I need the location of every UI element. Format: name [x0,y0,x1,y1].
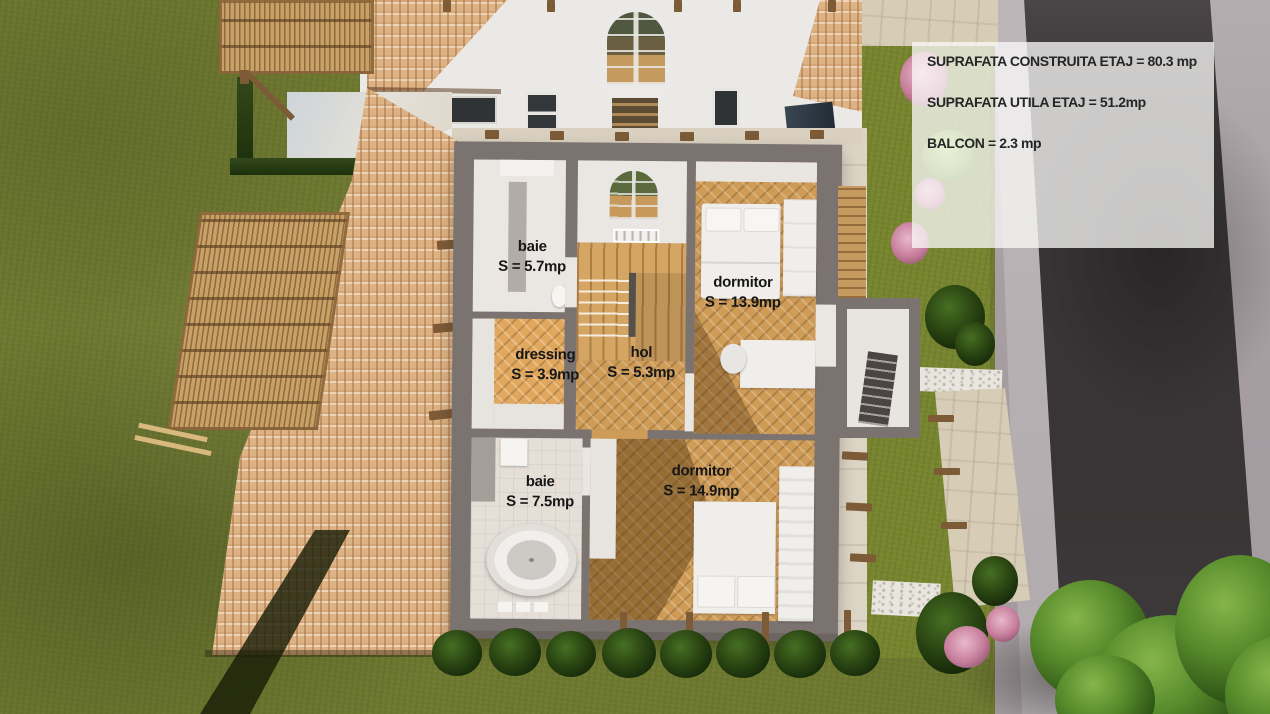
info-line-built-area: SUPRAFATA CONSTRUITA ETAJ = 80.3 mp [927,53,1214,69]
balcony [836,298,920,438]
path-tie-1 [928,415,954,422]
hol-radiator [613,229,659,243]
joist-6 [810,130,824,139]
door-baie-bottom [582,447,590,495]
room-area: S = 13.9mp [705,293,781,314]
rafter-4 [733,0,741,12]
chair-top [720,344,746,374]
hedge-bush-8 [830,630,880,676]
dormitor-top-wall-face [696,161,817,182]
label-dormitor-bottom: dormitor S = 14.9mp [663,461,739,502]
label-baie-bottom: baie S = 7.5mp [506,472,574,513]
room-area: S = 3.9mp [511,365,579,386]
conifer-2 [955,322,995,366]
info-line-balcony-area: BALCON = 2.3 mp [927,135,1214,151]
joist-5 [745,131,759,140]
info-line-usable-area: SUPRAFATA UTILA ETAJ = 51.2mp [927,94,1214,110]
deck-strip [838,186,866,298]
wall-beam-r1 [842,451,868,460]
bath-mat-3 [534,602,548,612]
dressing-shelf-band [472,318,495,428]
area-info-panel: SUPRAFATA CONSTRUITA ETAJ = 80.3 mp SUPR… [912,42,1214,248]
room-name: baie [506,472,574,493]
rafter-2 [547,0,555,12]
wardrobe-drawer-2 [737,576,775,608]
room-name: dormitor [663,461,739,482]
label-dormitor-top: dormitor S = 13.9mp [705,273,781,314]
conifer-4 [972,556,1018,606]
pergola-top [219,0,374,74]
rafter-5 [828,0,836,12]
hedge-bush-1 [432,630,482,676]
bathtub [486,524,577,597]
hol-arch-window [605,167,661,223]
room-area: S = 5.7mp [498,257,566,278]
joist-2 [550,131,564,140]
path-tie-3 [941,522,967,529]
hedge-bush-4 [602,628,656,678]
arch-window-sill [606,88,666,98]
room-name: baie [498,237,566,258]
wall-beam-r3 [850,553,876,562]
hedge-bush-7 [774,630,826,678]
wardrobe-drawer-1 [697,575,735,607]
balcony-railing [858,351,898,426]
room-name: hol [607,343,675,364]
rafter-1 [443,0,451,12]
wall-beam-r2 [846,502,872,511]
hedge-bush-2 [489,628,541,676]
hedge-vertical [237,77,253,163]
window-right [712,88,740,128]
bath-mat-2 [516,602,530,612]
joist-1 [485,130,499,139]
room-name: dressing [511,345,579,366]
joist-4 [680,132,694,141]
label-dressing: dressing S = 3.9mp [511,345,579,386]
window-left [447,96,497,124]
washer [500,439,527,466]
hedge-bush-3 [546,631,596,677]
dormitor-bottom-wall-face [590,439,617,559]
path-tie-2 [934,468,960,475]
hedge-bush-6 [716,628,770,678]
label-hol: hol S = 5.3mp [607,343,675,384]
bath-mat-1 [498,602,512,612]
wardrobe-top [783,199,817,296]
room-area: S = 7.5mp [506,492,574,513]
joist-3 [615,132,629,141]
room-name: dormitor [705,273,781,294]
rafter-3 [674,0,682,12]
door-baie-top [565,257,577,307]
hedge-bush-5 [660,630,712,678]
floor-plan: baie S = 5.7mp dormitor S = 13.9mp dress… [450,141,842,641]
render-canvas: baie S = 5.7mp dormitor S = 13.9mp dress… [0,0,1270,714]
bed-bottom [778,466,814,621]
desk-top [740,340,815,389]
door-dormitor-top [685,373,695,431]
label-baie-top: baie S = 5.7mp [498,237,566,278]
path-top [858,0,998,46]
dressing-lower-unit [494,404,564,430]
door-dormitor-bottom [592,430,648,439]
bed-top-pillow-1 [705,208,741,232]
stair-steps [578,274,631,336]
room-area: S = 14.9mp [663,481,739,502]
baie-top-cabinet [500,160,554,176]
baie-bottom-tile-band [471,437,496,501]
room-area: S = 5.3mp [607,363,675,384]
arch-window [601,6,671,90]
bed-top-pillow-2 [743,208,779,232]
